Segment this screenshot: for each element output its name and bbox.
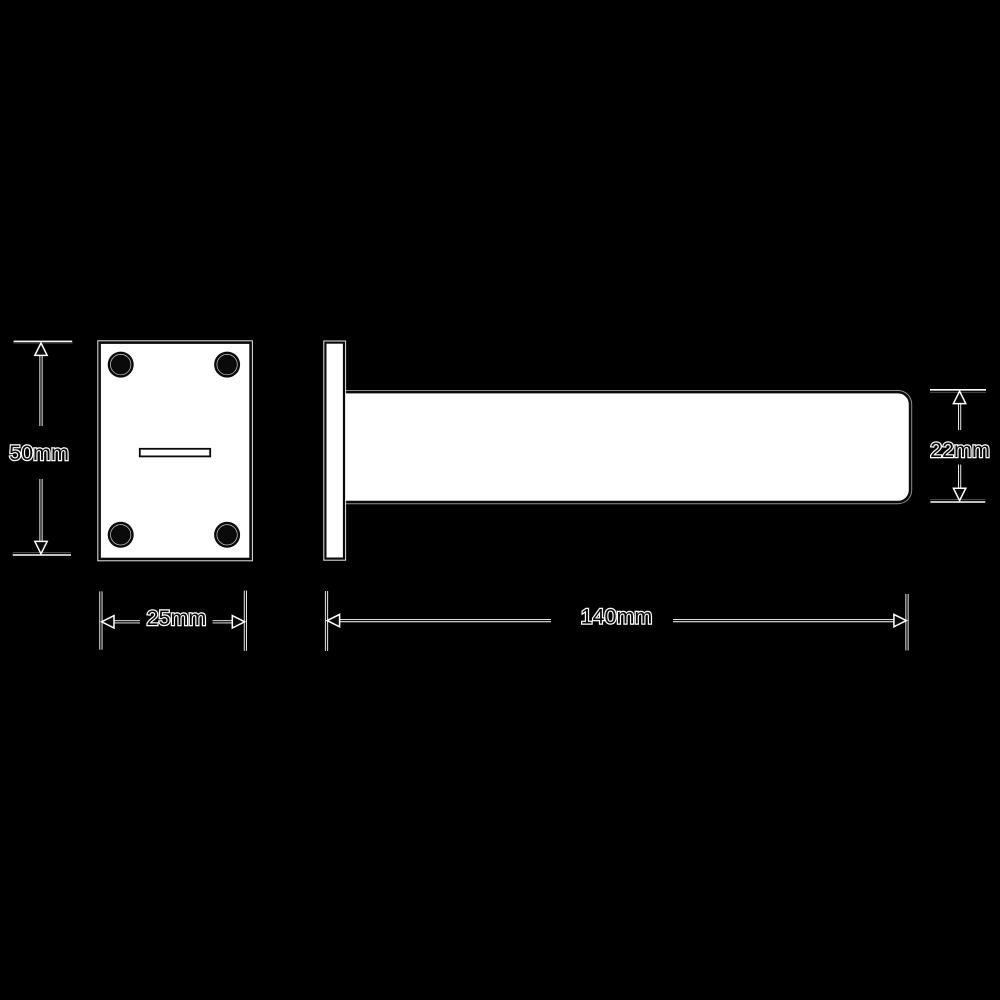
svg-text:22mm: 22mm [930, 438, 990, 462]
svg-text:140mm: 140mm [581, 605, 653, 629]
svg-text:25mm: 25mm [147, 606, 207, 630]
svg-text:50mm: 50mm [9, 441, 69, 465]
